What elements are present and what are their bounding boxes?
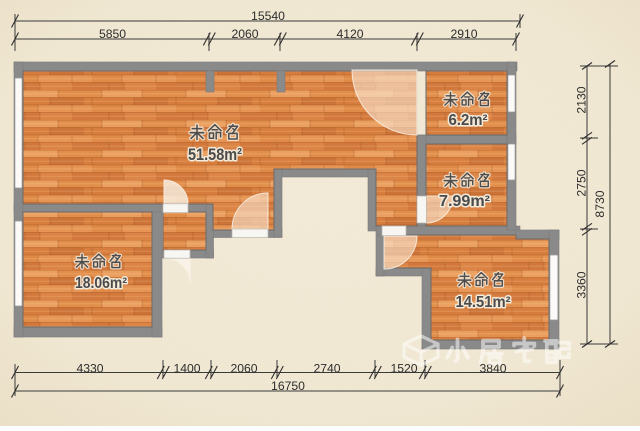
svg-text:16750: 16750 [271,379,305,393]
svg-text:51.58m²: 51.58m² [188,146,242,164]
svg-text:2060: 2060 [231,27,258,41]
svg-text:2910: 2910 [450,27,477,41]
svg-text:15540: 15540 [251,9,285,23]
svg-text:4120: 4120 [336,27,363,41]
svg-text:6.2m²: 6.2m² [449,112,488,129]
svg-text:5850: 5850 [99,27,126,41]
svg-text:3360: 3360 [575,271,589,298]
svg-text:8730: 8730 [593,190,607,217]
svg-text:2740: 2740 [313,362,340,376]
svg-text:2750: 2750 [575,169,589,196]
svg-text:14.51m²: 14.51m² [456,294,511,311]
svg-text:4330: 4330 [76,362,103,376]
svg-text:2130: 2130 [575,86,589,113]
svg-text:2060: 2060 [230,362,257,376]
svg-text:1400: 1400 [173,362,200,376]
svg-text:7.99m²: 7.99m² [439,193,490,210]
svg-text:1520: 1520 [390,362,417,376]
svg-text:18.06m²: 18.06m² [75,275,127,292]
